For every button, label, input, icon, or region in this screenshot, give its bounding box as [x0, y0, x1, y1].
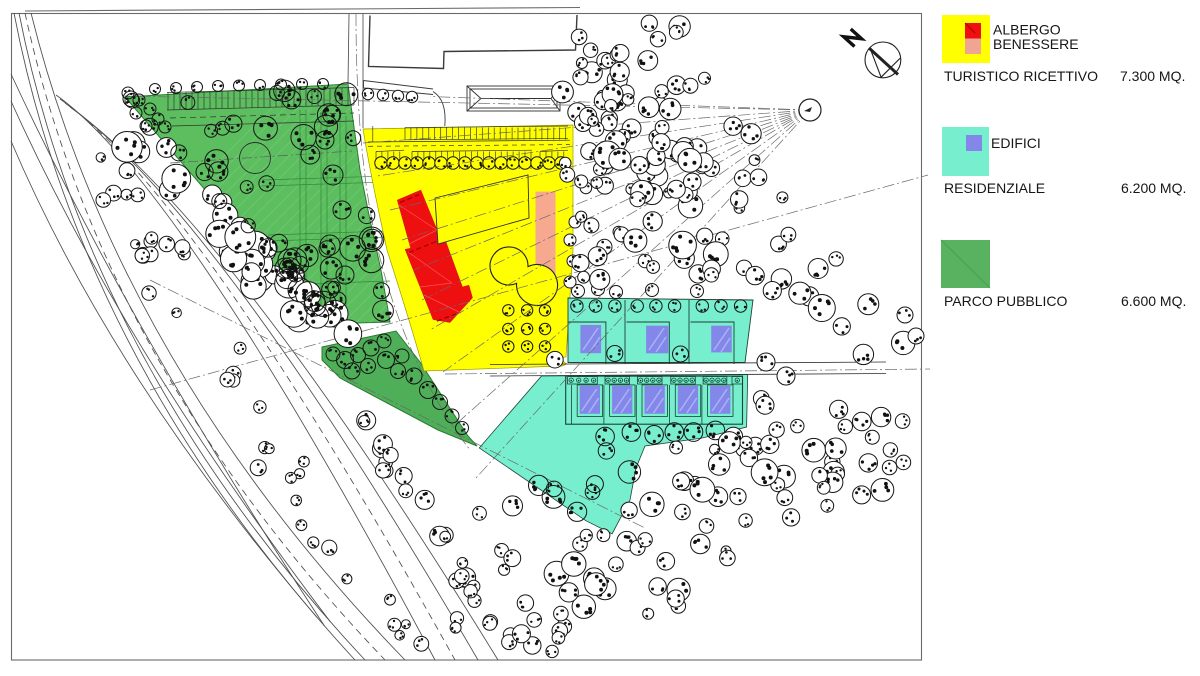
svg-text:PARCO PUBBLICO: PARCO PUBBLICO: [944, 293, 1068, 309]
svg-text:TURISTICO RICETTIVO: TURISTICO RICETTIVO: [944, 68, 1098, 84]
svg-text:6.600 MQ.: 6.600 MQ.: [1121, 293, 1186, 309]
svg-text:7.300 MQ.: 7.300 MQ.: [1120, 68, 1185, 84]
svg-text:EDIFICI: EDIFICI: [991, 135, 1041, 151]
svg-text:BENESSERE: BENESSERE: [993, 36, 1079, 52]
svg-text:6.200 MQ.: 6.200 MQ.: [1121, 180, 1186, 196]
svg-text:RESIDENZIALE: RESIDENZIALE: [944, 180, 1045, 196]
